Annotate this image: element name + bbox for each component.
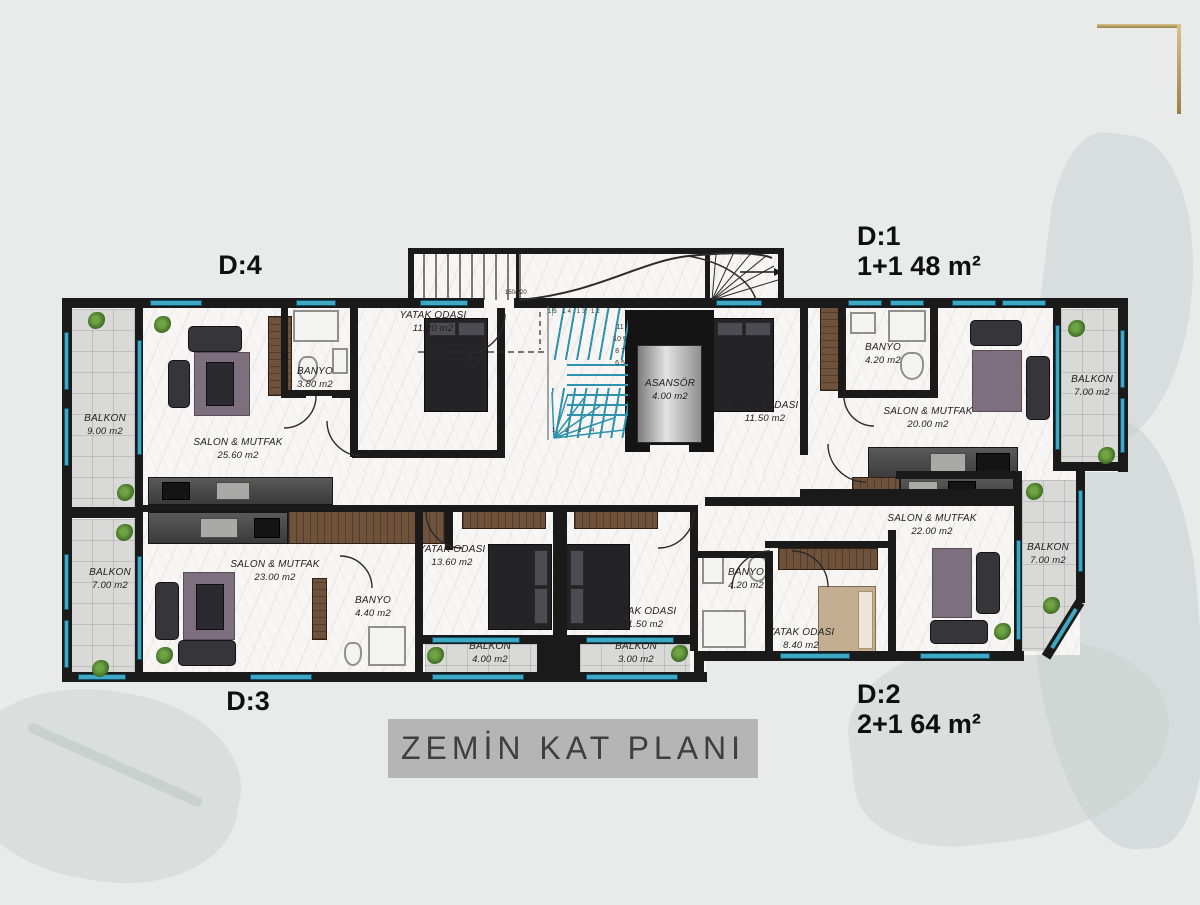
room-label-banyo-440: BANYO4.40 m2 [308,595,438,620]
sofa-d3 [178,640,236,666]
rug-d2 [932,548,972,618]
floor-plan-page: { "plan": { "title": "ZEMİN KAT PLANI", … [0,0,1200,848]
window-glass [1002,300,1046,306]
room-label-salon-2560: SALON & MUTFAK25.60 m2 [173,437,303,462]
wall-segment [765,541,896,548]
door-opening [306,396,332,402]
wall-segment [800,305,808,455]
window-glass [250,674,312,680]
room-label-salon-2300: SALON & MUTFAK23.00 m2 [210,559,340,584]
room-label-yatak-1150b: YATAK ODASI11.50 m2 [578,606,708,631]
plan-title-bar: ZEMİN KAT PLANI [388,719,758,778]
room-label-yatak-1360: YATAK ODASI13.60 m2 [387,544,517,569]
wall-segment [838,390,938,398]
door-size-note: 150/220 [505,290,545,297]
wall-segment [423,505,692,512]
gold-bracket-horizontal [1097,24,1181,28]
wall-segment [705,250,710,306]
unit-label-d2: D:2 2+1 64 m² [857,679,981,739]
wall-segment [408,248,414,306]
window-glass [64,332,69,390]
window-glass [716,300,762,306]
room-label-balkon-700br: BALKON7.00 m2 [983,542,1113,567]
shower-d1 [888,310,926,342]
wall-segment [896,471,1022,479]
unit-label-d1: D:1 1+1 48 m² [857,221,981,281]
wall-segment [415,505,423,681]
elevator-door-gap [650,445,689,452]
window-glass [420,300,468,306]
window-glass [920,653,990,659]
window-glass [432,674,524,680]
wardrobe-bedroom-1360 [462,509,546,529]
stove-d3 [254,518,280,538]
unit-d1-spec: 1+1 48 m² [857,251,981,281]
unit-d2-spec: 2+1 64 m² [857,709,981,739]
wall-segment [143,505,453,512]
armchair-d4 [168,360,190,408]
unit-d1-id: D:1 [857,221,981,251]
shower-d4 [293,310,339,342]
wall-segment [1053,462,1128,471]
gold-bracket-vertical [1177,24,1181,114]
stair-numbers-top: 15 14 13 12 [548,309,620,316]
watercolor-streak [26,722,204,808]
plan-title: ZEMİN KAT PLANI [401,730,745,767]
room-label-yatak-1150a: YATAK ODASI11.50 m2 [700,400,830,425]
unit-label-d4: D:4 [170,250,310,280]
wall-segment [888,530,896,651]
wall-segment [778,248,784,306]
shower-d3 [368,626,406,666]
room-label-yatak-1120: YATAK ODASI11.20 m2 [368,310,498,335]
stove-d4 [162,482,190,500]
window-glass [780,653,850,659]
kitchen-sink-d3 [200,518,238,538]
room-label-balkon-900: BALKON9.00 m2 [40,413,170,438]
sofa-d1 [970,320,1022,346]
room-label-yatak-840: YATAK ODASI8.40 m2 [736,627,866,652]
window-glass [586,674,678,680]
coffee-table-d3 [196,584,224,630]
sofa-d4 [188,326,242,352]
balcony-floor-bottom-left [71,519,135,672]
room-label-banyo-380: BANYO3.80 m2 [250,366,380,391]
room-label-salon-2000: SALON & MUTFAK20.00 m2 [863,406,993,431]
room-label-banyo-420a: BANYO4.20 m2 [818,342,948,367]
stair-numbers-side: 11 10 9 8 7 6 5 [613,322,627,370]
room-label-balkon-700bl: BALKON7.00 m2 [45,567,175,592]
window-glass [952,300,996,306]
door-opening [484,298,514,308]
wall-segment [705,497,1015,506]
balcony-floor-top-left [71,309,135,507]
room-label-balkon-300: BALKON3.00 m2 [571,641,701,666]
window-glass [64,620,69,668]
window-glass [150,300,202,306]
wall-segment [408,248,784,254]
window-glass [296,300,336,306]
sink-d1 [850,312,876,334]
toilet-d3 [344,642,362,666]
wall-segment [62,507,137,518]
window-glass [1120,398,1125,453]
window-glass [848,300,882,306]
wall-segment [352,450,505,458]
wall-segment [698,551,773,558]
wall-segment [553,509,567,642]
room-label-salon-2200: SALON & MUTFAK22.00 m2 [867,513,997,538]
rug-d1 [972,350,1022,412]
stair-numbers-bottom: 1 2 3 4 [552,428,612,435]
room-label-banyo-420b: BANYO4.20 m2 [681,567,811,592]
window-glass [890,300,924,306]
room-label-balkon-400: BALKON4.00 m2 [425,641,555,666]
sofa-d2 [930,620,988,644]
unit-label-d3: D:3 [178,686,318,716]
room-label-balkon-700tr: BALKON7.00 m2 [1027,374,1157,399]
wall-segment [497,305,505,453]
wardrobe-bedroom-1150b [574,509,658,529]
coffee-table-d4 [206,362,234,406]
unit-d2-id: D:2 [857,679,981,709]
kitchen-sink-d4 [216,482,250,500]
floor-entrance-porch [412,252,780,304]
